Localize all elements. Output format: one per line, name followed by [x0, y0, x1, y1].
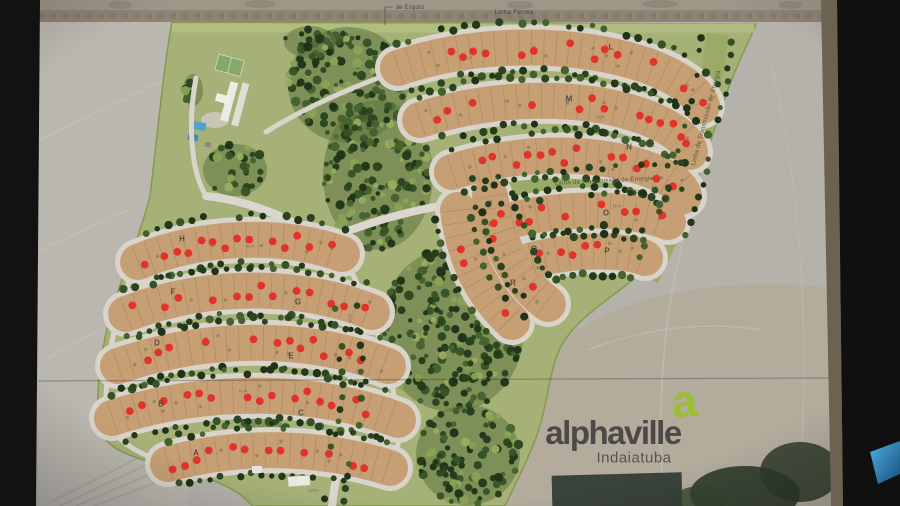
masterplan-photo: de Esgoto Linha Férrea Linha de Transmis… [0, 0, 900, 506]
photo-left-edge [0, 0, 40, 506]
masterplan-map-art [0, 0, 900, 506]
photo-right-edge [837, 0, 900, 506]
